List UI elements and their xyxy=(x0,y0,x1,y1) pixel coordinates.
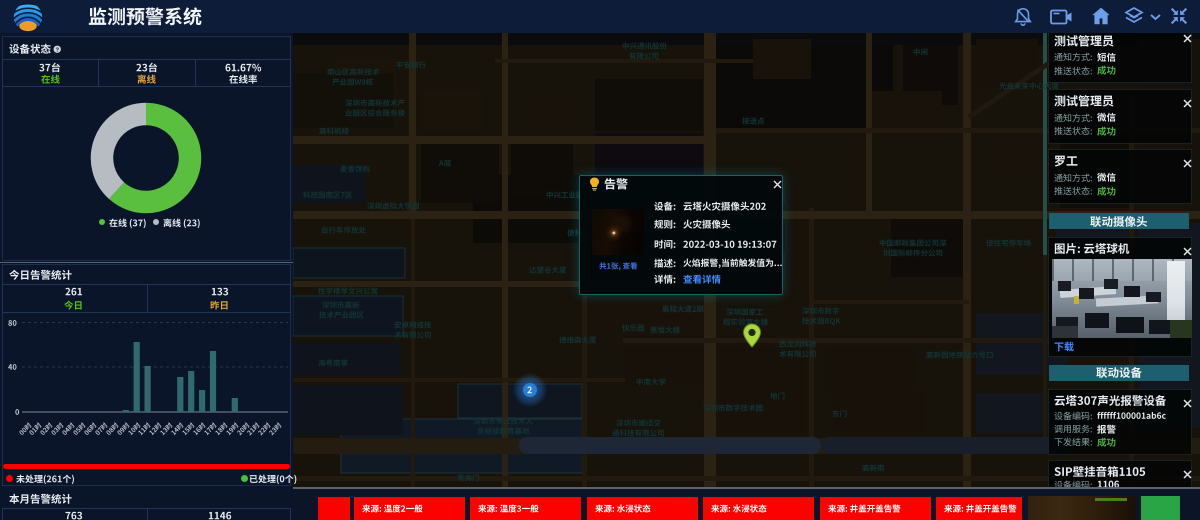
svg-text:?: ? xyxy=(55,47,59,53)
